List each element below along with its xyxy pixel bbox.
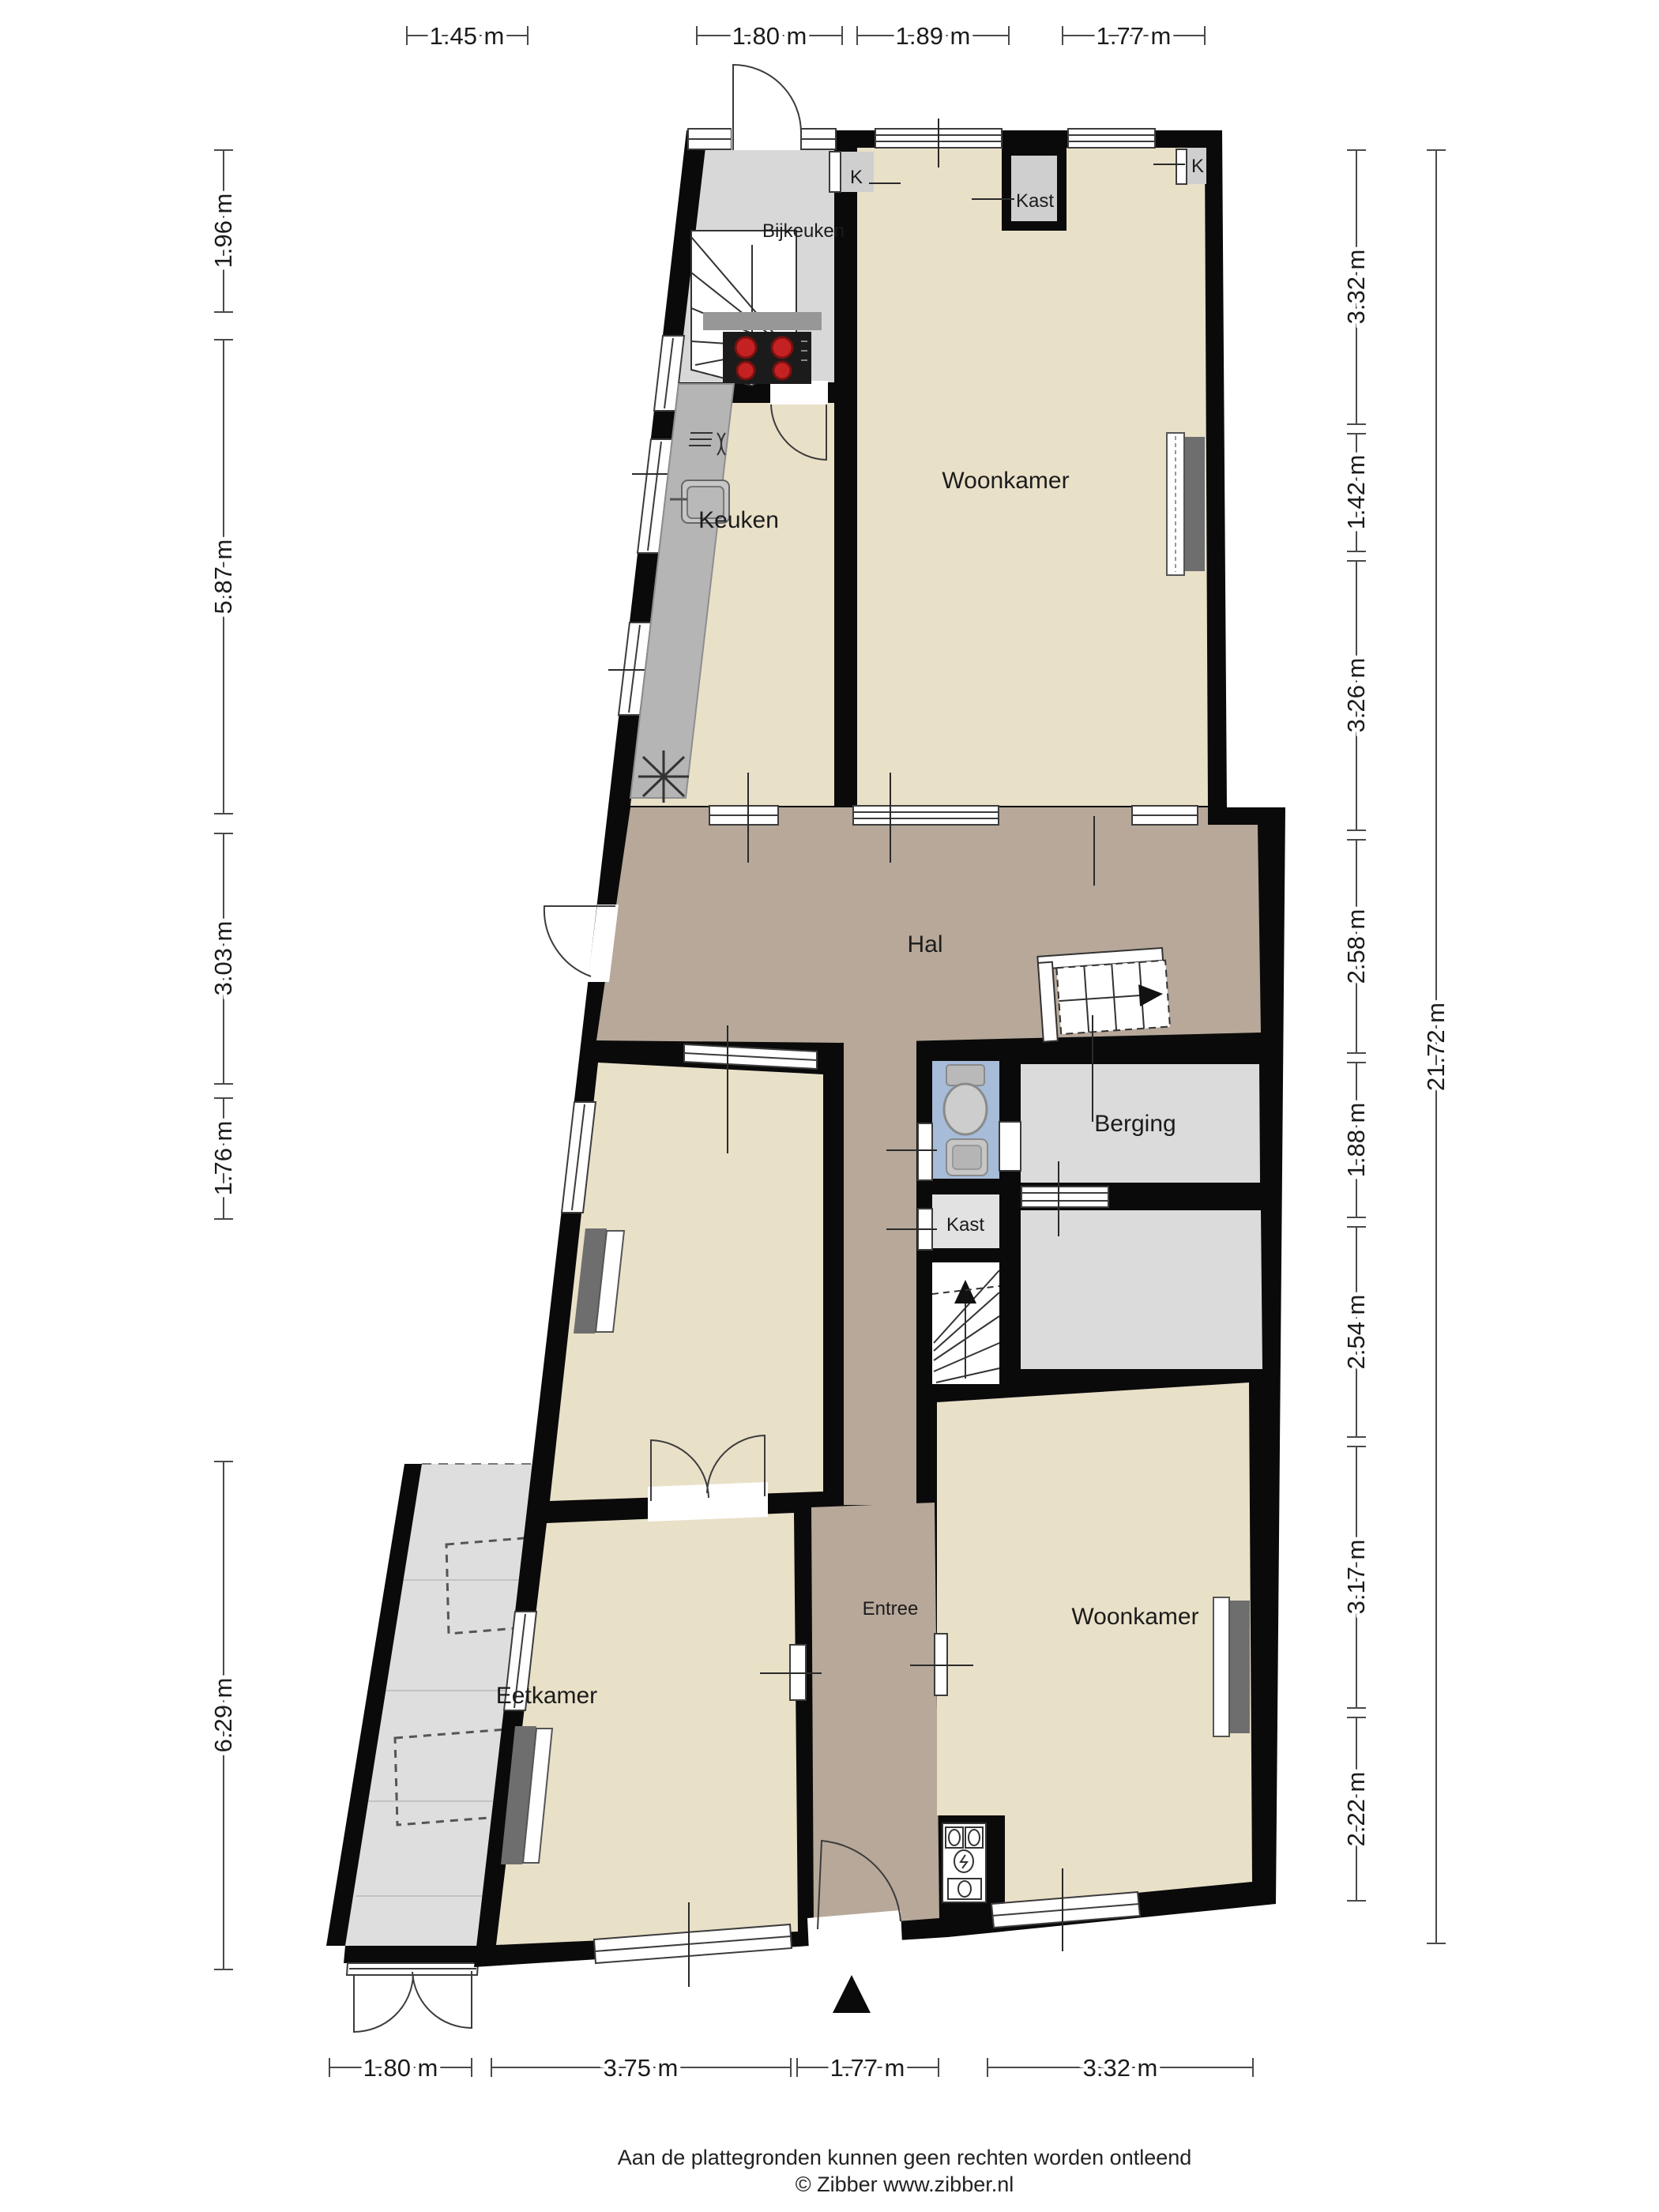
room-berging-lower-floor xyxy=(1021,1210,1262,1369)
toilet-icon xyxy=(944,1065,987,1176)
hall-corridor-floor xyxy=(844,1036,916,1505)
dim-left-3: 3.03 m xyxy=(209,921,237,996)
dim-right-1: 3.32 m xyxy=(1342,250,1370,325)
label-k-links: K xyxy=(850,167,863,188)
footer-disclaimer: Aan de plattegronden kunnen geen rechten… xyxy=(618,2146,1192,2169)
label-keuken: Keuken xyxy=(698,507,779,533)
floor-plan-canvas: 1.45 m 1.80 m 1.89 m 1.77 m 1.96 m 5.87 … xyxy=(0,0,1659,2212)
north-arrow xyxy=(833,1975,871,2013)
terrace-wall-bottom xyxy=(344,1946,481,1963)
dim-left-4: 1.76 m xyxy=(209,1121,237,1196)
door-opening-bijkeuken xyxy=(732,126,801,150)
dim-right-5: 1.88 m xyxy=(1342,1103,1370,1178)
dim-left-5: 6.29 m xyxy=(209,1678,237,1753)
floorplan-page: 1.45 m 1.80 m 1.89 m 1.77 m 1.96 m 5.87 … xyxy=(0,0,1659,2212)
window xyxy=(853,806,999,825)
closet-door xyxy=(829,152,841,192)
radiator-icon xyxy=(1213,1597,1250,1736)
door-toilet xyxy=(918,1123,932,1180)
dim-left-1: 1.96 m xyxy=(209,194,237,269)
cooktop-icon xyxy=(723,332,811,384)
footer-copyright: © Zibber www.zibber.nl xyxy=(796,2172,1014,2196)
dim-top-1: 1.45 m xyxy=(430,22,505,50)
door-berging xyxy=(999,1122,1021,1171)
dim-right-total: 21.72 m xyxy=(1422,1003,1450,1091)
dim-bottom-2: 3.75 m xyxy=(604,2054,679,2082)
door-opening xyxy=(770,381,828,404)
window xyxy=(1021,1187,1108,1207)
label-berging: Berging xyxy=(1094,1111,1176,1137)
dim-top-3: 1.89 m xyxy=(896,22,971,50)
label-woonkamer-onder: Woonkamer xyxy=(1071,1604,1198,1630)
label-hal: Hal xyxy=(907,931,942,957)
dim-top-2: 1.80 m xyxy=(732,22,807,50)
dim-right-4: 2.58 m xyxy=(1342,909,1370,984)
label-kast-boven: Kast xyxy=(1016,190,1054,212)
room-entree-floor xyxy=(811,1503,939,1928)
dim-top-4: 1.77 m xyxy=(1097,22,1172,50)
closet-door xyxy=(1176,149,1187,184)
label-bijkeuken: Bijkeuken xyxy=(762,220,845,242)
kitchen-shelf xyxy=(703,312,822,330)
label-kast-klein: Kast xyxy=(946,1214,984,1236)
label-woonkamer-top: Woonkamer xyxy=(942,468,1069,494)
dim-right-8: 2.22 m xyxy=(1342,1772,1370,1847)
utility-meters-icon xyxy=(942,1823,986,1902)
dim-left-2: 5.87 m xyxy=(209,540,237,615)
window xyxy=(1068,129,1155,148)
dim-right-6: 2.54 m xyxy=(1342,1295,1370,1370)
dim-right-7: 3.17 m xyxy=(1342,1540,1370,1615)
dim-bottom-3: 1.77 m xyxy=(830,2054,905,2082)
label-eetkamer: Eetkamer xyxy=(496,1683,597,1709)
dim-right-3: 3.26 m xyxy=(1342,658,1370,733)
dim-right-2: 1.42 m xyxy=(1342,455,1370,530)
label-entree: Entree xyxy=(863,1598,919,1619)
extractor-fan-icon xyxy=(638,750,689,803)
label-k-rechts: K xyxy=(1191,156,1204,177)
dim-bottom-4: 3.32 m xyxy=(1083,2054,1158,2082)
radiator-icon xyxy=(1167,433,1205,575)
dim-bottom-1: 1.80 m xyxy=(363,2054,438,2082)
